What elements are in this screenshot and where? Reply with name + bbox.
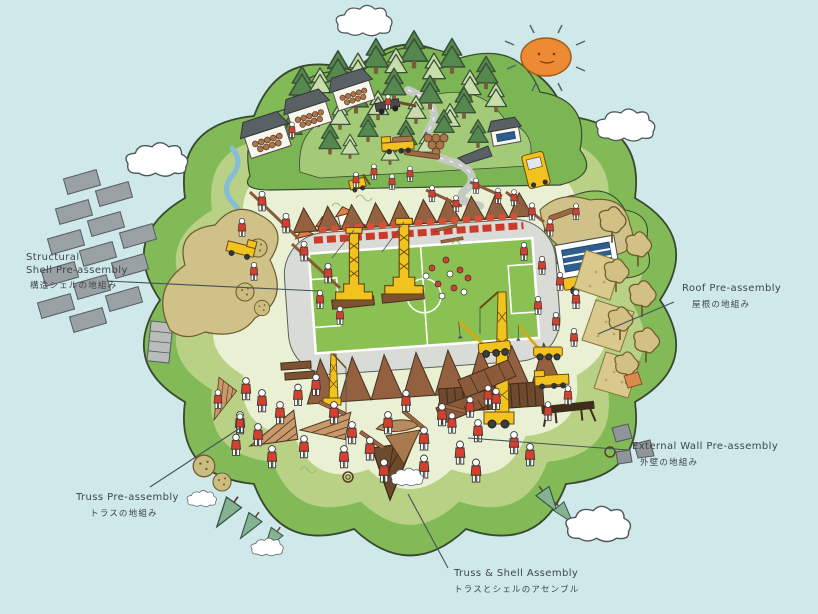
annotation-roof-ja: 屋根の地組み	[692, 298, 781, 310]
annotation-truss-shell-ja: トラスとシェルのアセンブル	[454, 583, 580, 595]
annotation-external-wall: External Wall Pre-assembly 外壁の地組み	[632, 441, 778, 468]
annotation-structural-shell-ja: 構造シェルの地組み	[30, 279, 128, 291]
annotation-truss-pre: Truss Pre-assembly トラスの地組み	[76, 492, 179, 519]
annotation-truss-shell: Truss & Shell Assembly トラスとシェルのアセンブル	[454, 568, 580, 595]
annotation-structural-shell-en1: Structural	[26, 252, 128, 265]
annotation-structural-shell-en2: Shell Pre-assembly	[26, 265, 128, 278]
annotation-roof: Roof Pre-assembly 屋根の地組み	[682, 283, 781, 310]
illustration-stage: Structural Shell Pre-assembly 構造シェルの地組み …	[0, 0, 818, 614]
annotation-truss-shell-en: Truss & Shell Assembly	[454, 568, 580, 581]
annotation-roof-en: Roof Pre-assembly	[682, 283, 781, 296]
annotation-structural-shell: Structural Shell Pre-assembly 構造シェルの地組み	[26, 252, 128, 291]
annotation-external-wall-en: External Wall Pre-assembly	[632, 441, 778, 454]
annotation-external-wall-ja: 外壁の地組み	[640, 456, 778, 468]
annotation-truss-pre-en: Truss Pre-assembly	[76, 492, 179, 505]
annotation-truss-pre-ja: トラスの地組み	[90, 507, 179, 519]
